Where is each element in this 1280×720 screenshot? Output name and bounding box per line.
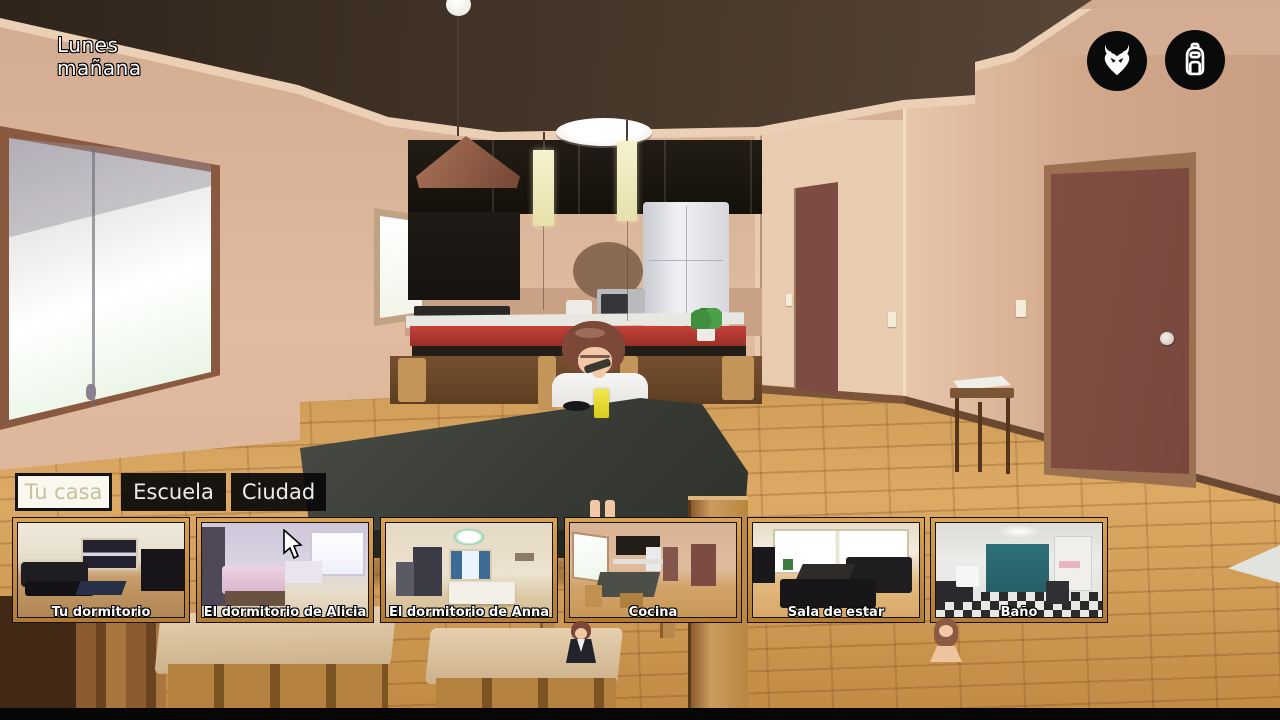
preview-plant	[783, 559, 793, 570]
light-switch	[786, 294, 792, 306]
preview-wall-shelf	[515, 553, 533, 561]
refrigerator-seam	[649, 260, 723, 261]
preview-tv	[141, 549, 184, 590]
room-thumbnail-dormitorio-anna[interactable]: El dormitorio de Anna	[381, 518, 557, 622]
game-screen: Lunes mañana Tu casa Escuela Ciudad	[0, 0, 1280, 720]
kitchen-cabinet-column	[408, 212, 520, 300]
preview-door	[663, 547, 678, 582]
hallway-door-large	[1051, 168, 1189, 474]
time-text: mañana	[57, 57, 142, 80]
side-table-leg	[978, 402, 982, 472]
lamp-wire	[543, 226, 544, 310]
preview-cabinet	[396, 562, 414, 596]
preview-window	[449, 549, 492, 581]
girl-glasses	[580, 355, 610, 358]
tab-ciudad[interactable]: Ciudad	[231, 473, 326, 511]
preview-sofa	[780, 579, 876, 607]
demon-icon[interactable]	[1087, 31, 1147, 91]
preview-ceiling-light	[999, 525, 1039, 538]
pendant-panel-light	[533, 150, 554, 226]
preview-counter	[613, 559, 663, 565]
ceiling-dome-light	[556, 118, 652, 146]
room-preview	[570, 523, 736, 617]
preview-low-table	[75, 581, 127, 595]
preview-bed	[449, 582, 515, 604]
backpack-icon[interactable]	[1165, 30, 1225, 90]
foreground-chair-frame	[168, 664, 388, 710]
door-knob	[1160, 332, 1174, 345]
light-switch	[1016, 300, 1026, 317]
lamp-wire	[627, 221, 628, 321]
room-label: El dormitorio de Anna	[381, 605, 557, 620]
tab-label: Tu casa	[25, 480, 103, 504]
preview-wardrobe	[413, 547, 443, 596]
preview-door	[691, 544, 716, 586]
room-thumbnail-cocina[interactable]: Cocina	[565, 518, 741, 622]
preview-ceiling-light	[452, 528, 485, 546]
room-preview	[18, 523, 184, 617]
girl-hair-highlight	[575, 328, 605, 338]
tab-tu-casa[interactable]: Tu casa	[15, 473, 112, 511]
bar-stool	[722, 356, 754, 400]
tab-label: Ciudad	[242, 480, 315, 504]
preview-shower-panel	[986, 544, 1049, 595]
room-preview	[753, 523, 919, 617]
left-window-divider	[92, 148, 95, 416]
room-label: Tu dormitorio	[13, 605, 189, 620]
lamp-cord	[543, 132, 545, 150]
backpack-icon-glyph	[1176, 41, 1214, 79]
marker-face	[575, 628, 587, 639]
hallway-door-frame	[1044, 152, 1196, 488]
mouse-cursor	[282, 529, 306, 561]
girl-bathing-marker	[928, 618, 964, 664]
demon-icon-glyph	[1098, 42, 1136, 80]
girl-uniform-marker	[566, 621, 596, 665]
foreground-chair-frame	[436, 678, 616, 710]
preview-window-curtains	[81, 538, 137, 570]
side-table-leg	[955, 398, 959, 472]
lamp-cord	[457, 12, 459, 136]
preview-towel	[1059, 561, 1081, 569]
room-preview	[936, 523, 1102, 617]
side-table	[950, 388, 1014, 398]
room-label: Sala de estar	[748, 605, 924, 620]
room-label: Cocina	[565, 605, 741, 620]
hallway-door-small	[794, 182, 838, 395]
preview-desk	[285, 561, 322, 584]
preview-sink	[956, 566, 979, 587]
side-table-leg	[1006, 398, 1010, 474]
light-switch	[888, 312, 896, 327]
lamp-cord	[626, 120, 628, 141]
marker-face	[939, 625, 953, 637]
tab-escuela[interactable]: Escuela	[121, 473, 226, 511]
room-thumbnail-sala-de-estar[interactable]: Sala de estar	[748, 518, 924, 622]
bar-stool	[398, 358, 426, 402]
potted-plant	[691, 308, 722, 329]
bowl	[563, 401, 590, 411]
drink-glass	[594, 389, 609, 418]
room-label: El dormitorio de Alicia	[197, 605, 373, 620]
room-preview	[386, 523, 552, 617]
preview-bed-frame	[225, 591, 285, 606]
pendant-panel-light	[617, 141, 637, 221]
preview-chair	[585, 585, 602, 607]
day-text: Lunes	[57, 34, 142, 57]
preview-tv	[753, 547, 775, 583]
preview-panel	[1046, 581, 1069, 604]
marker-shoulders	[930, 646, 962, 662]
bottom-letterbox-bar	[0, 708, 1280, 720]
room-thumbnail-tu-dormitorio[interactable]: Tu dormitorio	[13, 518, 189, 622]
room-thumbnail-bano[interactable]: Baño	[931, 518, 1107, 622]
left-window-latch	[86, 384, 96, 400]
datetime-label: Lunes mañana	[57, 34, 142, 80]
wall-corner-highlight	[903, 95, 906, 405]
tab-label: Escuela	[133, 480, 214, 504]
